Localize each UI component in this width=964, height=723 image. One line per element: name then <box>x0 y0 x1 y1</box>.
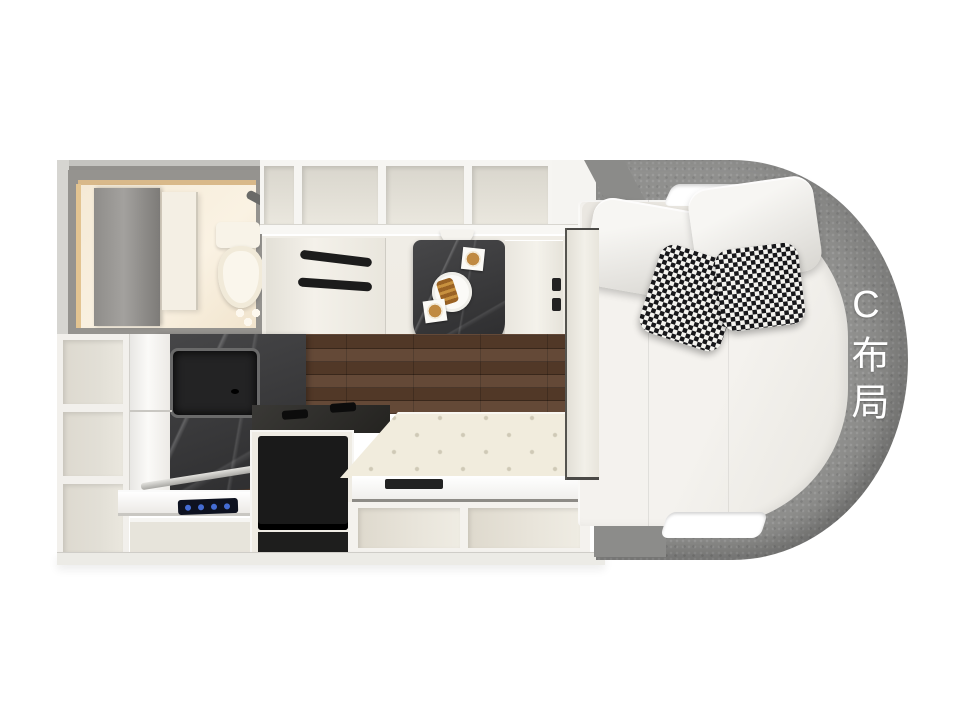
fridge-door-seam <box>130 410 172 412</box>
microwave <box>170 348 260 418</box>
window-cutout-bottom <box>660 512 768 538</box>
bench-seat-table <box>352 476 590 502</box>
wardrobe-handle <box>300 250 373 268</box>
shelf-compartment <box>63 484 123 552</box>
dining-table <box>413 240 505 348</box>
wardrobe <box>266 238 386 334</box>
shower-column <box>162 192 198 310</box>
cabinet-compartment <box>302 166 378 224</box>
overhead-cabinets <box>260 160 605 234</box>
cooktop-indicator <box>198 504 204 510</box>
tv-flip-counter <box>252 405 390 433</box>
bathroom-light-strip <box>78 180 256 185</box>
cabinet-compartment <box>264 166 294 224</box>
tv-screen <box>258 436 348 530</box>
counter-handle <box>330 402 357 413</box>
tv-cabinet <box>250 430 354 556</box>
shelf-compartment <box>63 340 123 404</box>
cabinet-handle <box>552 298 561 311</box>
storage-cubbies <box>348 502 590 554</box>
coffee-cup <box>426 302 444 320</box>
houndstooth-pillow <box>713 241 806 333</box>
bathroom-light-strip <box>76 184 81 328</box>
cooktop-indicator <box>211 504 217 510</box>
cabinet-compartment <box>472 166 548 224</box>
microwave-knob <box>231 389 239 394</box>
napkin <box>423 299 448 324</box>
fridge <box>128 334 170 492</box>
galley-row <box>262 236 605 336</box>
toilet <box>218 246 264 308</box>
coffee-cup <box>464 250 482 268</box>
cooktop-control-panel <box>178 498 238 515</box>
counter-handle <box>282 409 309 420</box>
sideboard-cabinet <box>505 240 563 336</box>
napkin <box>461 247 485 271</box>
cubby <box>468 508 580 548</box>
toilet-tank <box>216 222 260 248</box>
divider-panel <box>565 228 599 480</box>
wall-bottom <box>57 552 605 565</box>
cooktop-indicator <box>185 505 191 511</box>
cabinet-handle <box>552 278 561 291</box>
rv-floorplan-render: C布局 <box>0 0 964 723</box>
kitchen-counter <box>118 490 270 516</box>
bathroom-cabinet <box>94 188 160 326</box>
bathroom-area <box>68 170 262 334</box>
wardrobe-handle <box>298 277 372 291</box>
cooktop-indicator <box>224 503 230 509</box>
shelf-compartment <box>63 412 123 476</box>
cabinet-compartment <box>386 166 464 224</box>
cabinet-ledge <box>260 224 605 234</box>
serving-tray <box>385 479 443 489</box>
cubby <box>358 508 460 548</box>
pantry-shelves <box>57 334 129 558</box>
layout-label: C布局 <box>850 284 894 444</box>
under-counter-shelf <box>130 518 260 554</box>
